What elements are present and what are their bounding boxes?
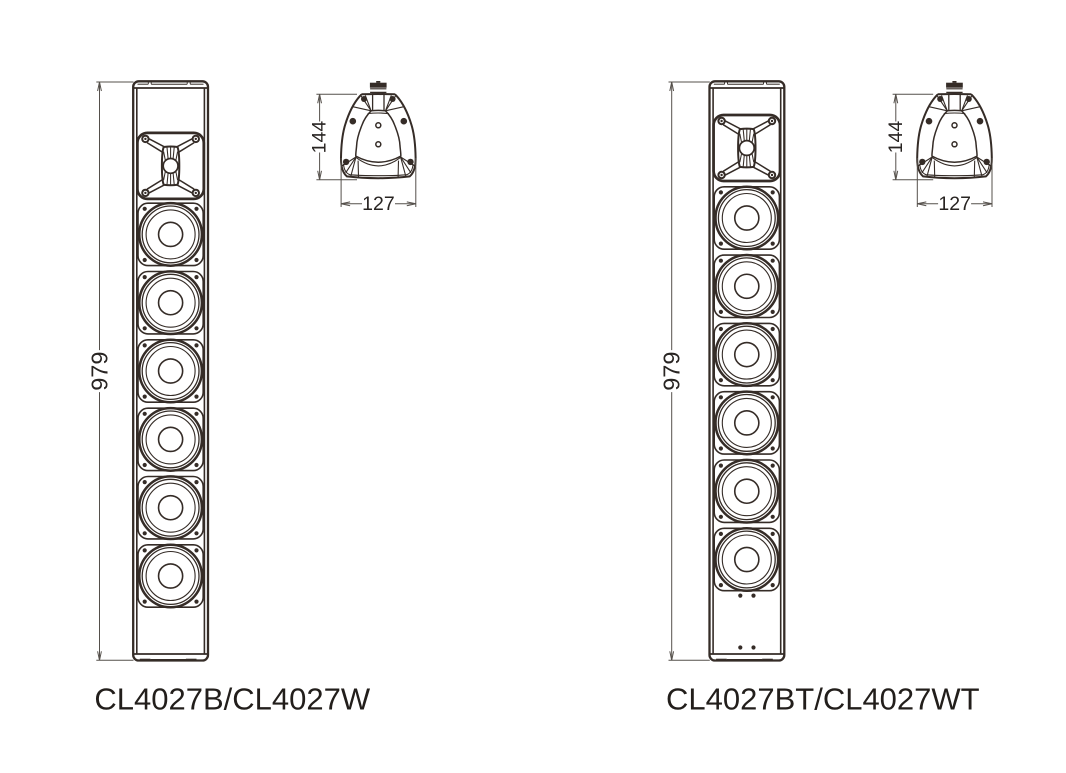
svg-text:979: 979	[659, 352, 685, 391]
svg-text:144: 144	[885, 121, 907, 154]
svg-text:127: 127	[938, 193, 971, 215]
svg-text:CL4027BT/CL4027WT: CL4027BT/CL4027WT	[666, 682, 980, 717]
svg-text:979: 979	[87, 352, 113, 391]
svg-text:144: 144	[309, 121, 331, 154]
svg-text:CL4027B/CL4027W: CL4027B/CL4027W	[94, 682, 370, 717]
svg-text:127: 127	[362, 193, 395, 215]
